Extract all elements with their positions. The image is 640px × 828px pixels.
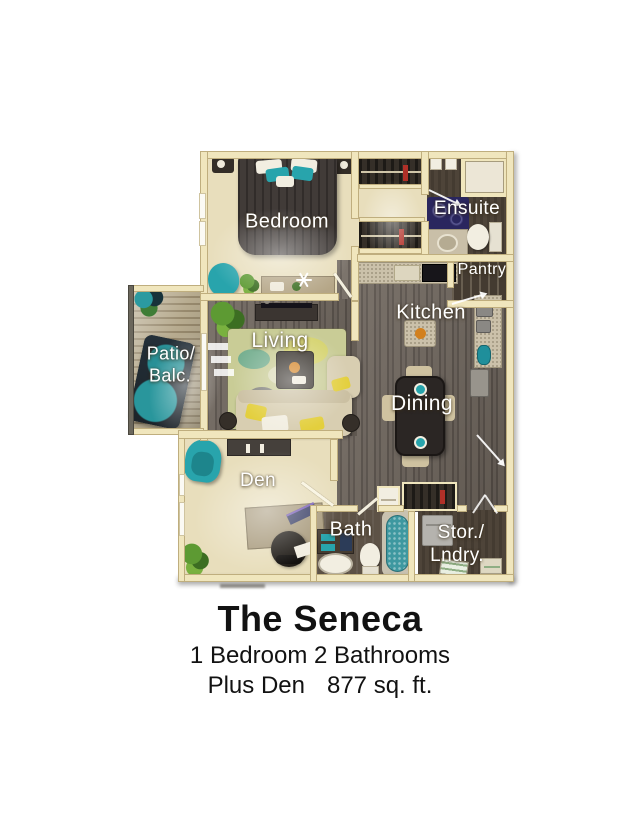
kitchen-sink xyxy=(477,345,491,365)
fridge xyxy=(470,369,489,397)
shadow-under-wall xyxy=(220,584,265,588)
bathtub-basin xyxy=(386,515,409,572)
plan-details: Plus Den877 sq. ft. xyxy=(0,672,640,700)
wall xyxy=(378,505,404,512)
plan-details-right: 877 sq. ft. xyxy=(327,672,432,699)
wall xyxy=(408,511,415,582)
lamp-right xyxy=(340,161,348,169)
entry-closet xyxy=(402,482,457,511)
cabinet-shelf xyxy=(381,499,396,501)
den-console-table xyxy=(227,439,291,456)
table-decor-orange xyxy=(289,362,300,373)
living-label: Living xyxy=(251,329,308,353)
side-table xyxy=(219,412,237,430)
snowflake-icon xyxy=(296,272,312,288)
microwave xyxy=(476,320,491,333)
sofa-back-cushions xyxy=(238,390,350,403)
closet-rod xyxy=(361,235,423,237)
patio-label-line2: Balc. xyxy=(149,366,191,387)
ensuite-vanity xyxy=(427,229,468,256)
towel-teal xyxy=(321,544,335,551)
tv-console xyxy=(255,304,318,321)
ensuite-toilet xyxy=(467,224,489,250)
bath-label: Bath xyxy=(330,519,373,542)
wall xyxy=(310,505,317,582)
kitchen-label: Kitchen xyxy=(396,302,466,325)
coffee-table xyxy=(276,351,314,389)
wall xyxy=(421,151,429,195)
tv-screen xyxy=(261,303,312,308)
wall xyxy=(447,262,454,288)
armchair-seat xyxy=(190,451,215,478)
food-bowl xyxy=(415,328,426,339)
plan-details-left: Plus Den xyxy=(208,672,305,699)
wall xyxy=(359,217,425,222)
side-table xyxy=(342,414,360,432)
wall xyxy=(128,285,204,292)
clothes-red xyxy=(440,490,445,504)
candle xyxy=(246,444,250,453)
patio-railing xyxy=(128,285,134,435)
lamp-left xyxy=(217,160,225,168)
wall xyxy=(178,574,514,582)
wall xyxy=(330,439,338,481)
pillow xyxy=(276,176,294,187)
wall xyxy=(351,301,359,341)
counter-tile xyxy=(394,265,420,281)
wall xyxy=(178,430,343,439)
clothes-red xyxy=(399,229,404,245)
dining-label: Dining xyxy=(391,392,453,416)
storage-label-line1: Stor./ xyxy=(438,522,485,544)
plant xyxy=(240,274,260,295)
plant xyxy=(182,542,210,576)
plan-title: The Seneca xyxy=(0,598,640,640)
shower xyxy=(461,157,508,197)
wall xyxy=(200,293,339,301)
pillow-teal xyxy=(291,166,314,182)
ensuite-shelf xyxy=(430,158,442,170)
bath-sink xyxy=(318,553,353,575)
wall xyxy=(506,151,514,582)
pantry-label: Pantry xyxy=(458,261,507,279)
wall xyxy=(359,184,425,189)
clothes-red xyxy=(403,165,408,181)
closet-rod xyxy=(361,171,423,173)
patio-door-blind xyxy=(214,369,234,376)
place-setting xyxy=(414,436,427,449)
patio-door-blind xyxy=(208,343,228,350)
ensuite-label: Ensuite xyxy=(434,198,500,220)
wall xyxy=(351,151,359,219)
bedroom-label: Bedroom xyxy=(245,211,329,234)
patio-label-line1: Patio/ xyxy=(147,344,195,365)
patio-door-blind xyxy=(211,356,231,363)
bath-toilet xyxy=(360,543,380,568)
basket-line xyxy=(484,566,500,568)
ensuite-shelf xyxy=(445,158,457,170)
title-block: The Seneca 1 Bedroom 2 Bathrooms Plus De… xyxy=(0,598,640,700)
window xyxy=(199,193,206,219)
plan-subtitle: 1 Bedroom 2 Bathrooms xyxy=(0,642,640,670)
window xyxy=(179,502,185,536)
dining-table xyxy=(395,376,445,456)
table-tray xyxy=(292,376,306,384)
wall xyxy=(457,505,467,512)
den-label: Den xyxy=(240,470,276,492)
dresser-tray xyxy=(270,282,284,291)
floor-plan-page: Bedroom Ensuite Pantry Kitchen Living Pa… xyxy=(0,0,640,828)
window xyxy=(179,474,185,496)
patio-door-glass xyxy=(201,333,207,391)
window xyxy=(199,221,206,246)
wall xyxy=(310,505,358,512)
storage-label-line2: Lndry. xyxy=(430,545,484,567)
ensuite-toilet-tank xyxy=(489,222,502,252)
candle xyxy=(260,444,264,453)
ensuite-sink xyxy=(437,234,458,252)
